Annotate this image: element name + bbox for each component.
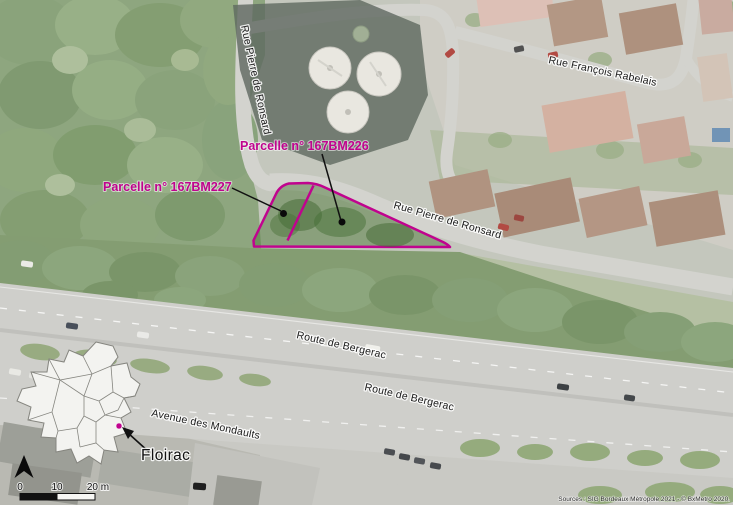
scale-bar-black-segment	[20, 494, 58, 501]
scale-tick-10: 10	[51, 482, 63, 493]
inset-commune-label: Floirac	[141, 447, 190, 464]
parcel-227-label: Parcelle n° 167BM227	[103, 180, 232, 194]
map-canvas: Rue Pierre de Ronsard Rue Pierre de Rons…	[0, 0, 733, 505]
attribution-text: Sources : SIG Bordeaux Métropole 2021 - …	[558, 495, 730, 503]
parcel-227-point	[280, 210, 287, 217]
scale-tick-0: 0	[17, 482, 23, 493]
scale-tick-20: 20 m	[87, 482, 109, 493]
aerial-map: Rue Pierre de Ronsard Rue Pierre de Rons…	[0, 0, 733, 505]
parcel-226-point	[339, 219, 346, 226]
parcel-226-label: Parcelle n° 167BM226	[240, 139, 369, 153]
inset-location-dot	[116, 423, 122, 429]
